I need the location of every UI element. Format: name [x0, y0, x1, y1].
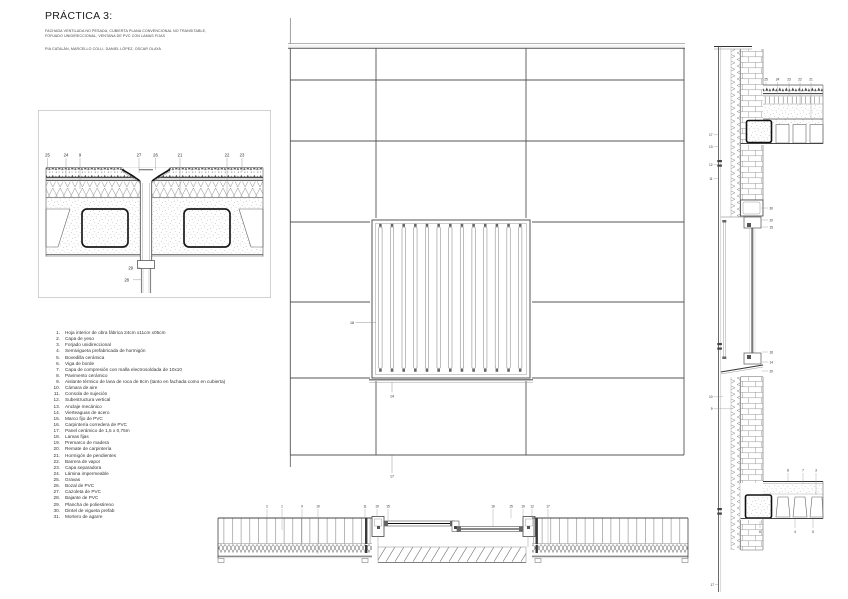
- roof-gravel: [763, 85, 823, 93]
- sill-frame: [744, 353, 761, 364]
- callout-panel: 17: [390, 475, 394, 479]
- floor-callout-below-1: 4: [794, 530, 796, 534]
- jamb-bracket: [365, 518, 367, 544]
- slope-concrete: [763, 105, 823, 119]
- lama-cap: [449, 224, 452, 227]
- lama-cap: [426, 369, 429, 372]
- edge-beam: [747, 121, 772, 143]
- sheet-subtitle-line2: FORJADO UNIDIRECCIONAL, VENTANA DE PVC C…: [45, 34, 295, 39]
- cladding-panel-plane: [717, 47, 722, 593]
- lama-slat: [414, 227, 417, 369]
- left-callout-0: 17: [709, 133, 713, 137]
- lama-cap: [472, 369, 475, 372]
- head-sill-callouts: 30 20 15 16 14 20: [761, 206, 773, 373]
- lama-cap: [379, 224, 382, 227]
- wall-insulation: [731, 49, 740, 550]
- left-callout-5: 9: [711, 407, 713, 411]
- plan-callout-10: 12: [530, 505, 534, 509]
- lama-cap: [391, 369, 394, 372]
- lama-cap: [496, 369, 499, 372]
- floor-callout-above-1: 7: [802, 469, 804, 473]
- right-wall-plan: [532, 518, 688, 563]
- lama-cap: [437, 224, 440, 227]
- title-block: PRÁCTICA 3: FACHADA VENTILADA NO PESADA,…: [45, 10, 295, 51]
- callout-sill: 14: [390, 395, 394, 399]
- lama-cap: [484, 369, 487, 372]
- lama-cap: [391, 224, 394, 227]
- lama-cap: [484, 224, 487, 227]
- left-callout-1: 13: [709, 145, 713, 149]
- lamas-section-strip: [722, 220, 726, 359]
- callout-21: 21: [178, 153, 183, 158]
- lama-slat: [390, 227, 393, 369]
- roof-callout-0: 25: [764, 78, 768, 82]
- vierteaguas: [721, 365, 763, 372]
- left-callouts: 17 13 12 11 10 9 17: [709, 133, 731, 587]
- floor-callout-below-0: 6: [759, 530, 761, 534]
- wall-section-drawing: 25 24 23 22 21: [700, 40, 848, 595]
- callout-25: 25: [45, 153, 50, 158]
- drawing-sheet: { "header": { "title": "PRÁCTICA 3:", "s…: [0, 0, 848, 599]
- callout-lamas: 18: [350, 321, 354, 325]
- plan-callout-1: 1: [281, 505, 283, 509]
- panel-joint-clips: [717, 160, 722, 515]
- lama-cap: [414, 369, 417, 372]
- callout-29: 29: [128, 265, 133, 270]
- legend-item-text: Mortero de agarre: [60, 514, 103, 520]
- lama-cap: [379, 369, 382, 372]
- roof-callout-4: 21: [809, 78, 813, 82]
- lama-cap: [437, 369, 440, 372]
- sill-callout-0: 16: [770, 350, 774, 354]
- parapet-coping: [288, 18, 685, 48]
- lama-slat: [472, 227, 475, 369]
- head-callout-1: 20: [770, 218, 774, 222]
- parapet-cap: [714, 47, 752, 50]
- head-callout-2: 15: [770, 225, 774, 229]
- lama-slat: [495, 227, 498, 369]
- lama-cap: [402, 369, 405, 372]
- material-legend: 1. Hoja interior de obra fábrica 24cm x1…: [48, 330, 283, 520]
- roof-insulation: [763, 96, 823, 104]
- lama-slat: [449, 227, 452, 369]
- plan-callout-2: 9: [301, 505, 303, 509]
- window-sill-section: [721, 353, 763, 377]
- insulation-plan: [218, 545, 372, 553]
- window-head: [721, 200, 763, 228]
- lama-slat: [425, 227, 428, 369]
- lamas-plan-hatch: [378, 547, 526, 563]
- lama-cap: [414, 224, 417, 227]
- left-callout-6: 17: [710, 583, 714, 587]
- head-frame: [744, 217, 761, 228]
- lama-cap: [507, 369, 510, 372]
- floor-callout-below-2: 5: [812, 530, 814, 534]
- lama-slat: [519, 227, 522, 369]
- callout-9: 9: [79, 153, 82, 158]
- facade-elevation-drawing: 18 14 17: [288, 15, 688, 485]
- left-wall-plan: [218, 518, 372, 563]
- plan-callout-8: 15: [509, 505, 513, 509]
- plan-callout-11: 17: [546, 505, 550, 509]
- lama-slat: [484, 227, 487, 369]
- lama-slat: [460, 227, 463, 369]
- lama-cap: [461, 224, 464, 227]
- lama-cap: [449, 369, 452, 372]
- callout-23: 23: [240, 153, 245, 158]
- plan-callout-7: 16: [491, 505, 495, 509]
- left-callout-2: 12: [709, 163, 713, 167]
- sill-callout-1: 14: [770, 360, 774, 364]
- callout-27: 27: [137, 153, 142, 158]
- window-plan-section-drawing: 2 1 9 10 11 19 15 16 15 19 12 17: [215, 500, 693, 575]
- lama-slat: [437, 227, 440, 369]
- roof-callout-3: 22: [798, 78, 802, 82]
- floor-callout-above-0: 8: [787, 469, 789, 473]
- callout-26: 26: [153, 153, 158, 158]
- lama-cap: [402, 224, 405, 227]
- roof-callout-2: 23: [787, 78, 791, 82]
- callout-24: 24: [64, 153, 69, 158]
- callout-22: 22: [225, 153, 230, 158]
- lama-slat: [507, 227, 510, 369]
- legend-item-number: 31.: [48, 514, 60, 520]
- lama-cap: [519, 224, 522, 227]
- sheet-title: PRÁCTICA 3:: [45, 10, 295, 22]
- lama-slat: [379, 227, 382, 369]
- head-callout-0: 30: [770, 206, 774, 210]
- insulation-layer: [46, 182, 263, 198]
- plan-callout-0: 2: [266, 505, 268, 509]
- window-plan: [372, 517, 535, 563]
- lama-cap: [472, 224, 475, 227]
- lama-cap: [426, 224, 429, 227]
- plan-callout-3: 10: [316, 505, 320, 509]
- plan-callout-5: 19: [375, 505, 379, 509]
- floor-edge-beam: [746, 495, 772, 518]
- callout-28: 28: [124, 277, 129, 282]
- lama-cap: [507, 224, 510, 227]
- team-names: PIA CATALÁN, MARCELLO COLLI, DANIEL LÓPE…: [45, 47, 295, 51]
- left-callout-4: 10: [709, 395, 713, 399]
- lama-cap: [496, 224, 499, 227]
- floor-callout-above-2: 3: [815, 469, 817, 473]
- roof-callout-1: 24: [776, 78, 780, 82]
- plan-callout-9: 19: [521, 505, 525, 509]
- lama-slat: [402, 227, 405, 369]
- lama-cap: [519, 369, 522, 372]
- pipe-collar: [138, 261, 155, 269]
- plan-callout-4: 11: [363, 505, 367, 509]
- left-callout-3: 11: [709, 177, 713, 181]
- floor-slab-assembly: [741, 482, 824, 520]
- plan-callout-labels: 2 1 9 10 11 19 15 16 15 19 12 17: [266, 505, 550, 509]
- sill-callout-2: 20: [770, 369, 774, 373]
- plan-callout-6: 15: [386, 505, 390, 509]
- glazing: [750, 228, 756, 353]
- lama-cap: [461, 369, 464, 372]
- roof-drain-detail-drawing: 25 24 9 27 26 21 22 23 29 28: [38, 110, 271, 298]
